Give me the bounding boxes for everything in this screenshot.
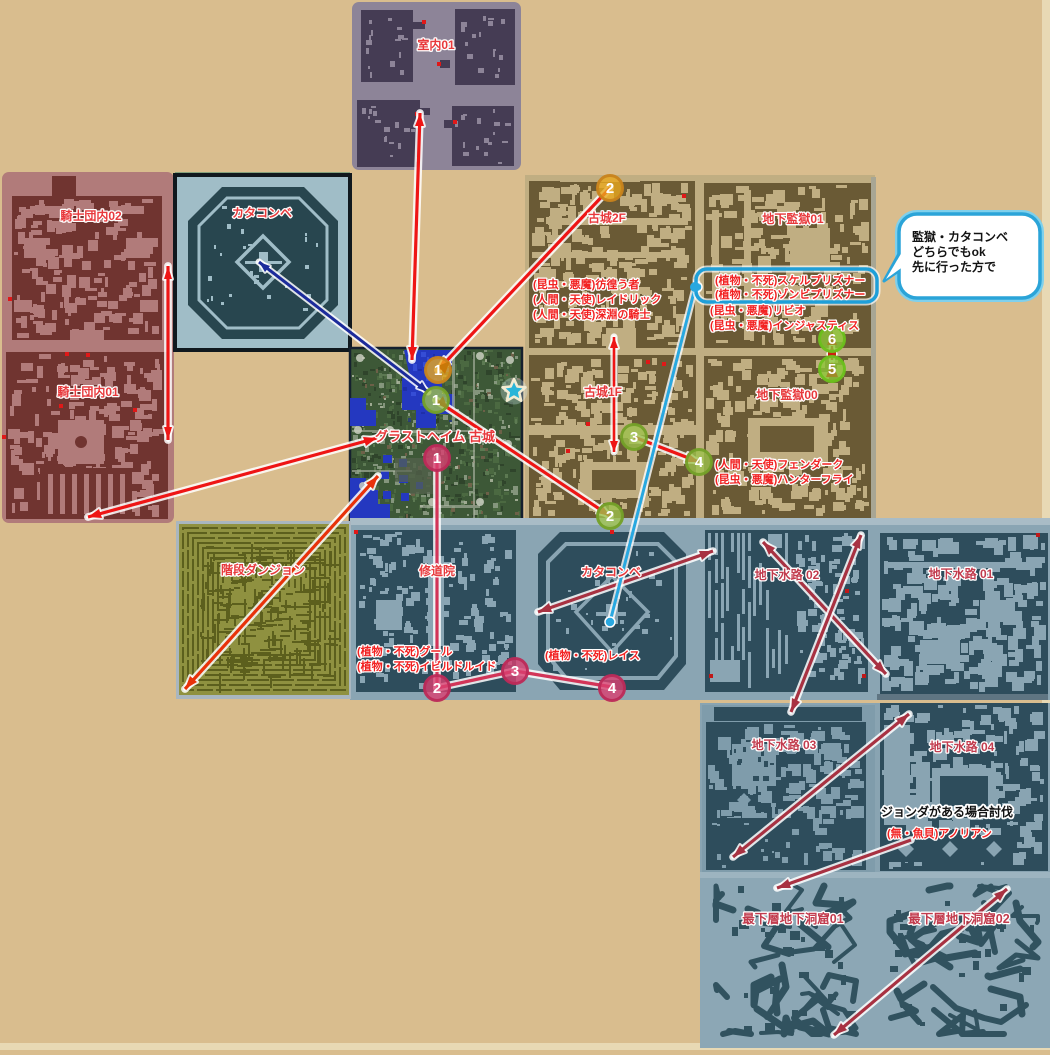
svg-text:古城1F: 古城1F	[584, 384, 622, 399]
svg-text:3: 3	[511, 663, 519, 680]
svg-text:地下監獄01: 地下監獄01	[762, 211, 824, 226]
svg-text:地下水路 04: 地下水路 04	[930, 739, 995, 754]
svg-text:4: 4	[695, 454, 704, 471]
svg-text:1: 1	[433, 450, 441, 467]
svg-text:最下層地下洞窟02: 最下層地下洞窟02	[908, 911, 1009, 926]
svg-text:(昆虫・悪魔)彷徨う者: (昆虫・悪魔)彷徨う者	[533, 277, 639, 291]
svg-text:地下水路 01: 地下水路 01	[929, 566, 994, 581]
svg-text:1: 1	[432, 392, 440, 409]
svg-text:(植物・不死)ゾンビプリズナー: (植物・不死)ゾンビプリズナー	[715, 287, 865, 301]
svg-text:室内01: 室内01	[417, 37, 455, 52]
svg-text:カタコンベ: カタコンベ	[581, 565, 641, 579]
svg-text:騎士団内01: 騎士団内01	[57, 384, 119, 399]
svg-text:2: 2	[606, 180, 614, 197]
svg-text:先に行った方で: 先に行った方で	[912, 259, 996, 274]
svg-text:(人間・天使)深淵の騎士: (人間・天使)深淵の騎士	[533, 307, 650, 321]
svg-text:地下水路 03: 地下水路 03	[752, 737, 817, 752]
svg-text:(植物・不死)スケルプリズナー: (植物・不死)スケルプリズナー	[715, 273, 865, 287]
svg-text:2: 2	[433, 680, 441, 697]
svg-text:グラストヘイム 古城: グラストヘイム 古城	[375, 429, 495, 444]
svg-text:古城2F: 古城2F	[588, 210, 626, 225]
svg-text:(人間・天使)レイドリック: (人間・天使)レイドリック	[533, 292, 661, 306]
svg-text:監獄・カタコンベ: 監獄・カタコンベ	[912, 229, 1008, 244]
svg-text:(人間・天使)フェンダーク: (人間・天使)フェンダーク	[715, 457, 843, 471]
svg-text:3: 3	[630, 429, 638, 446]
svg-text:4: 4	[608, 680, 617, 697]
svg-text:(植物・不死)グール: (植物・不死)グール	[357, 644, 452, 658]
svg-text:最下層地下洞窟01: 最下層地下洞窟01	[742, 911, 843, 926]
svg-text:階段ダンジョン: 階段ダンジョン	[221, 562, 305, 577]
svg-text:1: 1	[434, 362, 442, 379]
svg-text:(植物・不死)イビルドルイド: (植物・不死)イビルドルイド	[357, 659, 496, 673]
svg-text:(昆虫・悪魔)リビオ: (昆虫・悪魔)リビオ	[710, 303, 805, 317]
svg-text:2: 2	[606, 508, 614, 525]
svg-text:(昆虫・悪魔)インジャスティス: (昆虫・悪魔)インジャスティス	[710, 318, 859, 332]
svg-text:修道院: 修道院	[418, 563, 455, 578]
svg-text:6: 6	[828, 331, 836, 348]
svg-text:ジョンダがある場合討伐: ジョンダがある場合討伐	[881, 804, 1013, 819]
svg-text:(昆虫・悪魔)ハンターフライ: (昆虫・悪魔)ハンターフライ	[715, 472, 854, 486]
svg-text:地下水路 02: 地下水路 02	[755, 567, 820, 582]
svg-text:(植物・不死)レイス: (植物・不死)レイス	[545, 648, 640, 662]
svg-text:どちらでもok: どちらでもok	[912, 245, 986, 259]
svg-text:カタコンベ: カタコンベ	[232, 206, 292, 220]
svg-text:騎士団内02: 騎士団内02	[60, 208, 122, 223]
svg-text:(無・魚貝)アノリアン: (無・魚貝)アノリアン	[887, 826, 992, 840]
svg-text:地下監獄00: 地下監獄00	[756, 387, 818, 402]
svg-text:5: 5	[828, 361, 836, 378]
